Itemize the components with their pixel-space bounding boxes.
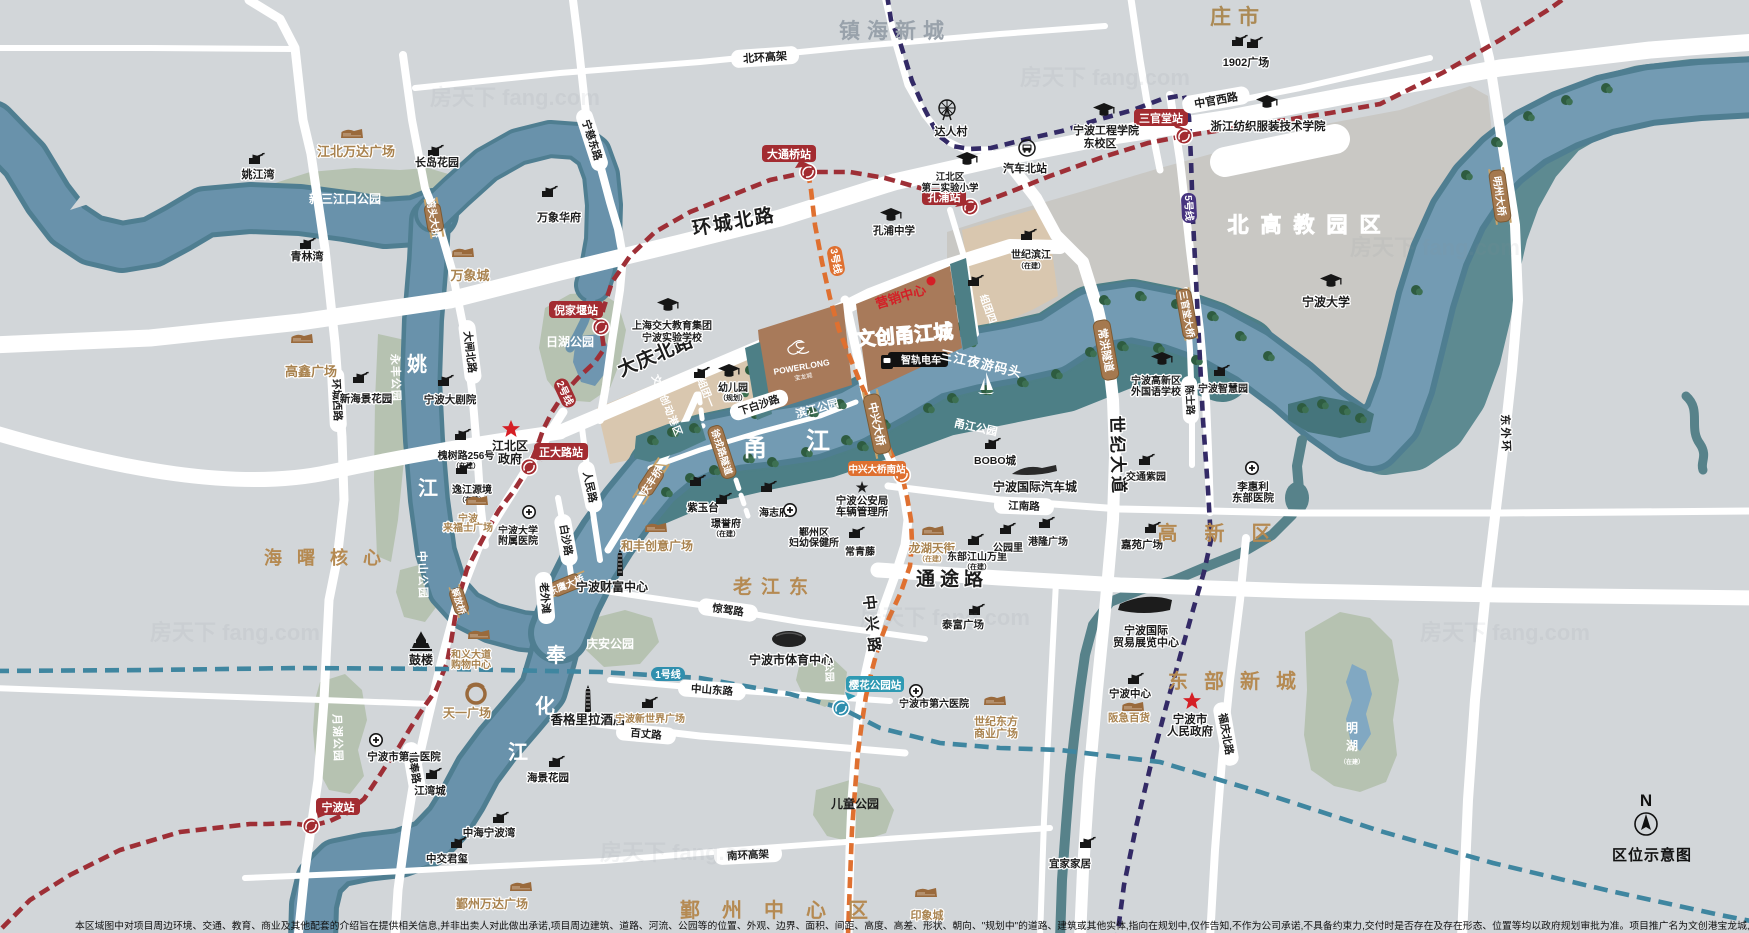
svg-text:房天下 fang.com: 房天下 fang.com (600, 840, 770, 865)
svg-text:儿童公园: 儿童公园 (830, 796, 879, 811)
svg-text:上海交大教育集团: 上海交大教育集团 (632, 319, 712, 332)
svg-text:世纪东方: 世纪东方 (974, 714, 1018, 728)
svg-text:外国语学校: 外国语学校 (1130, 385, 1182, 398)
svg-text:万象华府: 万象华府 (536, 210, 581, 224)
svg-text:鄞州万达广场: 鄞州万达广场 (456, 896, 528, 911)
svg-text:（在建）: （在建） (1017, 261, 1045, 270)
svg-text:房天下 fang.com: 房天下 fang.com (430, 85, 600, 110)
svg-text:第二实验小学: 第二实验小学 (921, 182, 979, 194)
svg-text:宁波智慧园: 宁波智慧园 (1198, 382, 1248, 395)
svg-text:宁波新世界广场: 宁波新世界广场 (615, 712, 685, 725)
svg-text:中海宁波湾: 中海宁波湾 (463, 826, 516, 839)
svg-text:新三江口公园: 新三江口公园 (309, 191, 381, 206)
svg-text:日湖公园: 日湖公园 (546, 334, 594, 349)
svg-text:来福士广场: 来福士广场 (442, 521, 493, 534)
svg-text:购物中心: 购物中心 (451, 658, 491, 671)
svg-text:（在建）: （在建） (963, 562, 991, 571)
svg-text:东外环: 东外环 (1498, 414, 1513, 453)
svg-text:1902广场: 1902广场 (1223, 55, 1269, 69)
svg-text:阪急百货: 阪急百货 (1108, 711, 1150, 724)
svg-text:（在建）: （在建） (918, 554, 946, 563)
svg-text:江: 江 (418, 477, 438, 500)
svg-text:高新区: 高新区 (1158, 521, 1299, 545)
svg-text:宁波大剧院: 宁波大剧院 (424, 393, 477, 406)
svg-text:江北万达广场: 江北万达广场 (317, 144, 395, 159)
svg-text:庄市: 庄市 (1210, 5, 1266, 29)
svg-text:★: ★ (856, 479, 869, 495)
svg-text:汽车北站: 汽车北站 (1003, 161, 1047, 175)
svg-text:公园里: 公园里 (993, 542, 1023, 554)
svg-text:本区域图中对项目周边环境、交通、教育、商业及其他配套的介绍旨: 本区域图中对项目周边环境、交通、教育、商业及其他配套的介绍旨在提供相关信息,并非… (75, 919, 1749, 932)
svg-text:和丰创意广场: 和丰创意广场 (620, 538, 693, 553)
svg-text:妇幼保健所: 妇幼保健所 (788, 536, 839, 549)
svg-text:宜家家居: 宜家家居 (1049, 857, 1091, 870)
svg-text:海曙核心: 海曙核心 (264, 547, 396, 568)
svg-text:樱花公园站: 樱花公园站 (849, 679, 902, 692)
svg-text:印象城: 印象城 (911, 908, 944, 922)
svg-text:紫玉台: 紫玉台 (687, 501, 719, 514)
svg-text:宁波大学: 宁波大学 (1302, 294, 1350, 309)
svg-text:槐树路256号: 槐树路256号 (437, 449, 495, 462)
svg-text:宁波国际汽车城: 宁波国际汽车城 (993, 479, 1077, 494)
svg-text:天一广场: 天一广场 (443, 705, 491, 720)
svg-text:宁波市第六医院: 宁波市第六医院 (899, 697, 969, 710)
svg-text:政府: 政府 (498, 451, 522, 466)
svg-text:镇海新城: 镇海新城 (839, 19, 951, 43)
svg-text:浙江纺织服装技术学院: 浙江纺织服装技术学院 (1211, 119, 1326, 133)
svg-text:BOBO城: BOBO城 (974, 454, 1017, 467)
svg-text:中交君玺: 中交君玺 (426, 852, 468, 865)
svg-text:宁波财富中心: 宁波财富中心 (576, 579, 648, 594)
svg-text:车辆管理所: 车辆管理所 (836, 505, 889, 518)
svg-text:幼儿园: 幼儿园 (718, 381, 748, 394)
svg-text:智轨电车: 智轨电车 (901, 354, 941, 367)
svg-text:倪家堰站: 倪家堰站 (554, 303, 598, 317)
svg-text:鼓楼: 鼓楼 (409, 652, 433, 667)
svg-text:孔浦中学: 孔浦中学 (873, 224, 915, 237)
svg-text:璟誉府: 璟誉府 (711, 517, 741, 530)
svg-text:江北区: 江北区 (492, 438, 528, 453)
svg-text:房天下 fang.com: 房天下 fang.com (860, 605, 1030, 630)
svg-text:三官堂站: 三官堂站 (1139, 111, 1183, 125)
svg-text:东校区: 东校区 (1084, 136, 1117, 150)
svg-text:姚: 姚 (406, 352, 427, 376)
svg-text:甬: 甬 (743, 435, 767, 462)
svg-text:宁波高新区: 宁波高新区 (1131, 374, 1181, 387)
svg-text:世纪大道: 世纪大道 (1107, 415, 1130, 496)
svg-text:宁波实验学校: 宁波实验学校 (642, 331, 703, 344)
svg-text:高鑫广场: 高鑫广场 (285, 364, 337, 379)
svg-text:房天下 fang.com: 房天下 fang.com (1420, 620, 1590, 645)
svg-text:北高教园区: 北高教园区 (1228, 213, 1393, 237)
svg-text:宁波站: 宁波站 (322, 800, 355, 814)
svg-text:达人村: 达人村 (935, 124, 968, 138)
svg-text:1号线: 1号线 (655, 668, 681, 681)
svg-text:庆安公园: 庆安公园 (585, 636, 634, 651)
svg-text:宁波市体育中心: 宁波市体育中心 (749, 652, 833, 667)
svg-text:区位示意图: 区位示意图 (1612, 846, 1692, 864)
svg-text:逸江源境: 逸江源境 (452, 483, 492, 496)
svg-text:房天下 fang.com: 房天下 fang.com (150, 620, 320, 645)
svg-text:明: 明 (1346, 721, 1358, 735)
svg-text:宁波中心: 宁波中心 (1109, 687, 1151, 700)
svg-text:贸易展览中心: 贸易展览中心 (1113, 635, 1179, 649)
svg-text:正大路站: 正大路站 (539, 445, 583, 459)
svg-text:（在建）: （在建） (712, 529, 740, 538)
svg-text:中兴大桥南站: 中兴大桥南站 (848, 464, 906, 476)
svg-text:江北区: 江北区 (936, 171, 965, 183)
svg-text:宁波市第一医院: 宁波市第一医院 (367, 750, 441, 763)
svg-text:老江东: 老江东 (733, 575, 817, 598)
svg-text:长岛花园: 长岛花园 (415, 155, 459, 169)
svg-text:姚江湾: 姚江湾 (241, 167, 275, 181)
svg-text:世纪滨江: 世纪滨江 (1011, 248, 1051, 261)
svg-text:宁波市: 宁波市 (1173, 712, 1208, 726)
svg-text:（规划）: （规划） (719, 393, 747, 402)
svg-text:奉: 奉 (545, 643, 567, 667)
svg-text:常青藤: 常青藤 (845, 545, 876, 558)
svg-text:公园: 公园 (823, 662, 836, 682)
svg-text:化: 化 (535, 694, 555, 718)
svg-text:附属医院: 附属医院 (498, 534, 538, 547)
svg-text:青林湾: 青林湾 (291, 249, 324, 263)
svg-text:人民政府: 人民政府 (1167, 724, 1213, 738)
svg-text:东部新城: 东部新城 (1168, 669, 1312, 693)
svg-text:宁波工程学院: 宁波工程学院 (1073, 123, 1139, 137)
svg-text:宁波国际: 宁波国际 (1124, 623, 1168, 637)
svg-text:（在建）: （在建） (1340, 758, 1364, 766)
svg-text:东部医院: 东部医院 (1232, 491, 1274, 504)
svg-text:江: 江 (806, 428, 830, 455)
svg-text:港隆广场: 港隆广场 (1028, 535, 1068, 548)
svg-text:万象城: 万象城 (449, 268, 489, 283)
svg-text:海景花园: 海景花园 (527, 771, 569, 784)
svg-text:江湾城: 江湾城 (414, 784, 446, 797)
svg-text:N: N (1640, 791, 1652, 810)
svg-text:房天下 fang.com: 房天下 fang.com (1020, 65, 1190, 90)
svg-text:大通桥站: 大通桥站 (767, 147, 811, 161)
svg-text:鄞州中心区: 鄞州中心区 (680, 898, 890, 922)
svg-text:房天下 fang.com: 房天下 fang.com (1350, 235, 1520, 260)
svg-text:江: 江 (508, 741, 528, 764)
svg-text:交通紫园: 交通紫园 (1126, 470, 1166, 483)
svg-text:湖: 湖 (1346, 738, 1358, 753)
svg-text:商业广场: 商业广场 (974, 726, 1018, 740)
svg-text:江南路: 江南路 (1008, 499, 1040, 513)
svg-text:新海景花园: 新海景花园 (340, 392, 393, 405)
